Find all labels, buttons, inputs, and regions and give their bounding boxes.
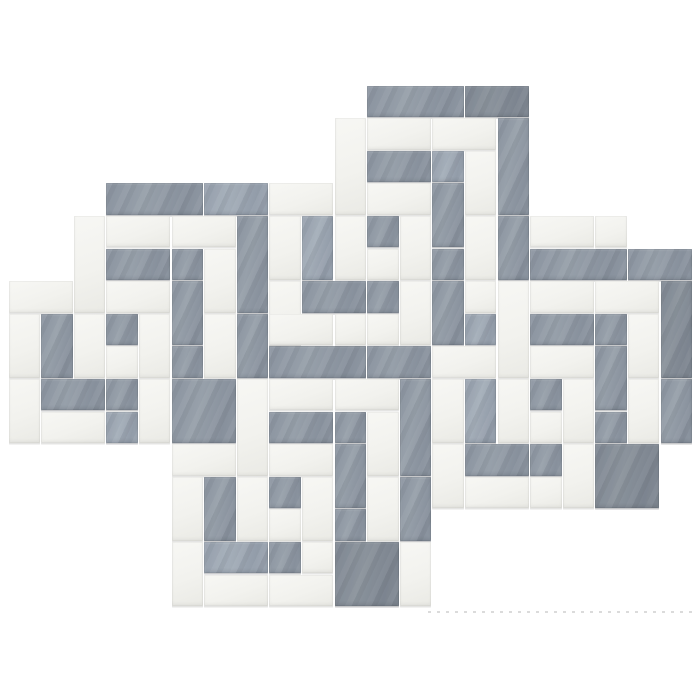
gray-marble-piece [661, 379, 692, 443]
white-marble-piece [204, 575, 268, 606]
gray-marble-piece [432, 249, 463, 280]
gray-marble-piece [465, 86, 529, 117]
white-marble-piece [465, 216, 496, 280]
gray-marble-piece [335, 412, 366, 443]
white-marble-piece [465, 477, 529, 508]
white-marble-piece [400, 542, 431, 606]
white-marble-piece [530, 412, 561, 443]
gray-marble-piece [432, 183, 463, 247]
white-marble-piece [400, 281, 431, 345]
white-marble-piece [400, 216, 431, 280]
white-marble-piece [172, 216, 236, 247]
gray-marble-piece [204, 183, 268, 214]
white-marble-piece [237, 477, 268, 541]
white-marble-piece [139, 314, 170, 378]
white-marble-piece [595, 216, 626, 247]
white-marble-piece [563, 379, 594, 443]
gray-marble-piece [498, 216, 529, 280]
white-marble-piece [530, 477, 561, 508]
gray-marble-piece [367, 86, 464, 117]
white-marble-piece [237, 379, 268, 476]
gray-marble-piece [172, 346, 203, 377]
gray-marble-piece [661, 281, 692, 378]
gray-marble-piece [595, 412, 626, 443]
gray-marble-piece [530, 379, 561, 410]
white-marble-piece [302, 477, 333, 541]
gray-marble-piece [400, 379, 431, 476]
gray-marble-piece [595, 444, 659, 508]
white-marble-piece [41, 412, 105, 443]
gray-marble-piece [335, 509, 366, 540]
white-marble-piece [367, 183, 431, 214]
white-marble-piece [269, 509, 300, 540]
white-marble-piece [367, 412, 398, 476]
gray-marble-piece [106, 314, 137, 345]
gray-marble-piece [367, 346, 431, 377]
white-marble-piece [269, 444, 333, 475]
mosaic-sheet [0, 0, 700, 700]
gray-marble-piece [269, 477, 300, 508]
gray-marble-piece [269, 412, 333, 443]
gray-marble-piece [465, 444, 529, 475]
white-marble-piece [9, 314, 40, 378]
gray-marble-piece [172, 379, 236, 443]
gray-marble-piece [106, 412, 137, 443]
gray-marble-piece [628, 249, 692, 280]
white-marble-piece [530, 216, 594, 247]
gray-marble-piece [432, 281, 463, 345]
white-marble-piece [432, 346, 496, 377]
gray-marble-piece [367, 216, 398, 247]
gray-marble-piece [367, 151, 431, 182]
white-marble-piece [628, 379, 659, 443]
white-marble-piece [269, 216, 300, 280]
gray-marble-piece [302, 281, 366, 312]
white-marble-piece [367, 314, 398, 345]
product-image [0, 0, 700, 700]
white-marble-piece [9, 379, 40, 443]
gray-marble-piece [595, 346, 626, 410]
white-marble-piece [628, 314, 659, 378]
white-marble-piece [302, 542, 333, 573]
white-marble-piece [204, 249, 235, 313]
white-marble-piece [204, 314, 235, 378]
gray-marble-piece [269, 542, 300, 573]
gray-marble-piece [595, 314, 626, 345]
gray-marble-piece [335, 444, 366, 508]
gray-marble-piece [172, 281, 203, 345]
gray-marble-piece [335, 542, 399, 606]
white-marble-piece [269, 183, 333, 214]
gray-marble-piece [530, 444, 561, 475]
white-marble-piece [172, 444, 236, 475]
white-marble-piece [367, 249, 398, 280]
gray-marble-piece [106, 379, 137, 410]
white-marble-piece [432, 444, 463, 508]
white-marble-piece [465, 281, 496, 312]
white-marble-piece [530, 346, 594, 377]
white-marble-piece [106, 281, 170, 312]
gray-marble-piece [204, 477, 235, 541]
white-marble-piece [465, 151, 496, 215]
gray-marble-piece [465, 314, 496, 345]
gray-marble-piece [237, 216, 268, 313]
white-marble-piece [269, 575, 333, 606]
white-marble-piece [172, 477, 203, 541]
white-marble-piece [367, 118, 431, 149]
white-marble-piece [563, 444, 594, 508]
gray-marble-piece [269, 346, 366, 377]
gray-marble-piece [106, 183, 203, 214]
white-marble-piece [74, 314, 105, 378]
gray-marble-piece [237, 314, 268, 378]
gray-marble-piece [106, 249, 170, 280]
white-marble-piece [335, 118, 366, 215]
gray-marble-piece [41, 314, 72, 378]
white-marble-piece [106, 346, 137, 377]
gray-marble-piece [172, 249, 203, 280]
gray-marble-piece [530, 314, 594, 345]
white-marble-piece [106, 216, 170, 247]
white-marble-piece [335, 314, 366, 345]
scan-artifact-dots [428, 611, 698, 613]
gray-marble-piece [400, 477, 431, 541]
gray-marble-piece [204, 542, 268, 573]
white-marble-piece [172, 542, 203, 606]
white-marble-piece [595, 281, 659, 312]
white-marble-piece [139, 379, 170, 443]
white-marble-piece [335, 379, 399, 410]
gray-marble-piece [465, 379, 496, 443]
gray-marble-piece [302, 216, 333, 280]
white-marble-piece [498, 379, 529, 443]
white-marble-piece [530, 281, 594, 312]
white-marble-piece [367, 477, 398, 541]
white-marble-piece [335, 216, 366, 280]
white-marble-piece [269, 314, 333, 345]
gray-marble-piece [41, 379, 105, 410]
white-marble-piece [432, 118, 496, 149]
gray-marble-piece [498, 118, 529, 215]
gray-marble-piece [530, 249, 627, 280]
white-marble-piece [432, 379, 463, 443]
white-marble-piece [9, 281, 73, 312]
gray-marble-piece [367, 281, 398, 312]
white-marble-piece [74, 216, 105, 313]
white-marble-piece [269, 379, 333, 410]
gray-marble-piece [432, 151, 463, 182]
white-marble-piece [498, 281, 529, 378]
